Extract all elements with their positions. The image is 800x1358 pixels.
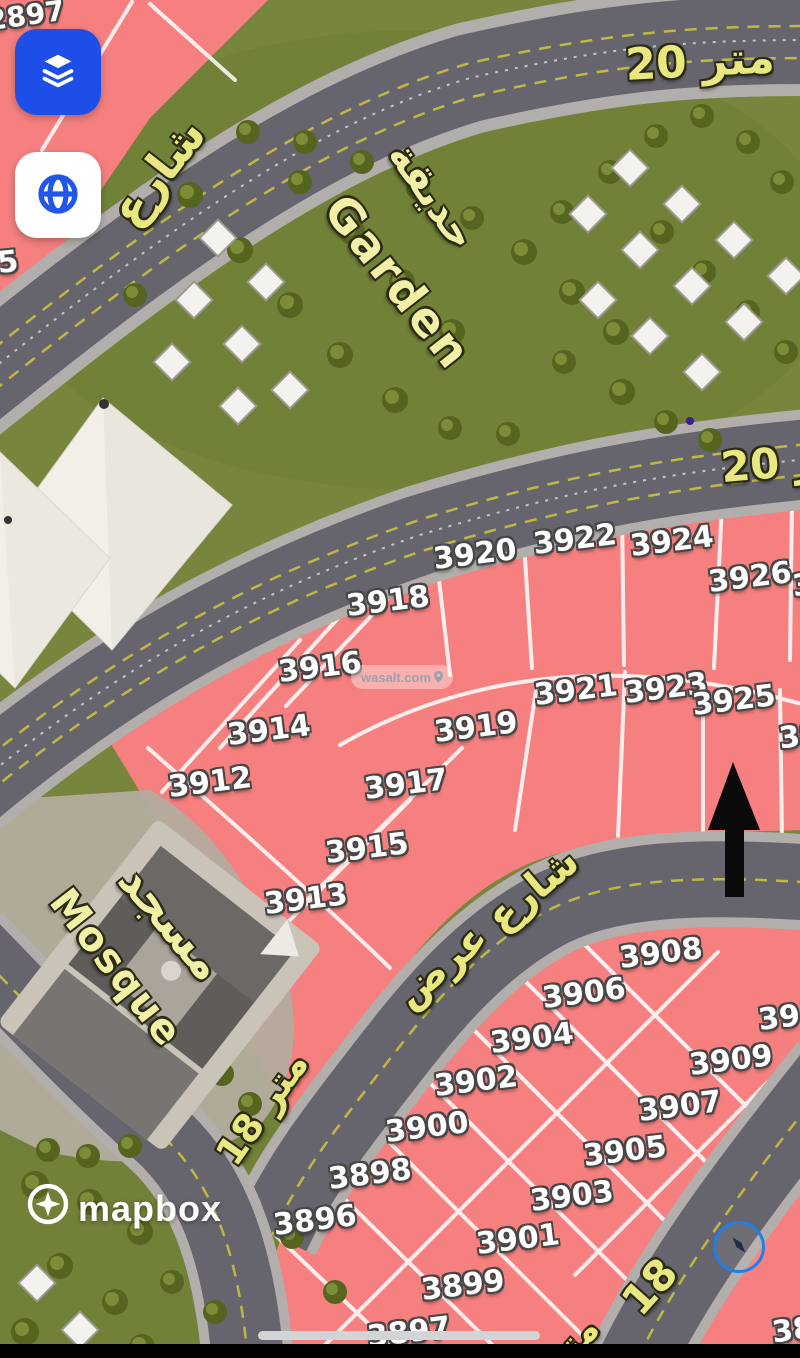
wasalt-watermark-text: wasalt.com	[361, 670, 431, 685]
locate-button[interactable]	[713, 1221, 765, 1273]
mapbox-logo-icon	[26, 1182, 70, 1235]
bottom-black-bar	[0, 1344, 800, 1358]
street-label-20 متر: 20 متر	[719, 435, 800, 489]
wasalt-watermark: wasalt.com	[351, 665, 453, 689]
location-pin-icon	[434, 671, 443, 683]
plot-label-5: 5	[0, 247, 20, 279]
compass-needle-icon	[726, 1232, 752, 1263]
plot-label-3910: 3910	[757, 996, 800, 1036]
layers-button[interactable]	[15, 29, 101, 115]
mapbox-attribution[interactable]: mapbox	[26, 1182, 222, 1235]
layers-icon	[35, 48, 81, 97]
plot-label-39: 39	[777, 720, 800, 755]
globe-icon	[34, 170, 82, 221]
street-label-20 متر: 20 متر	[624, 36, 775, 88]
map-dot	[686, 417, 694, 425]
mapbox-logo-text: mapbox	[78, 1188, 222, 1230]
globe-button[interactable]	[15, 152, 101, 238]
horizontal-scrollbar[interactable]	[258, 1331, 540, 1340]
map-screen[interactable]: 2897539183920392239243926339163921392339…	[0, 0, 800, 1358]
